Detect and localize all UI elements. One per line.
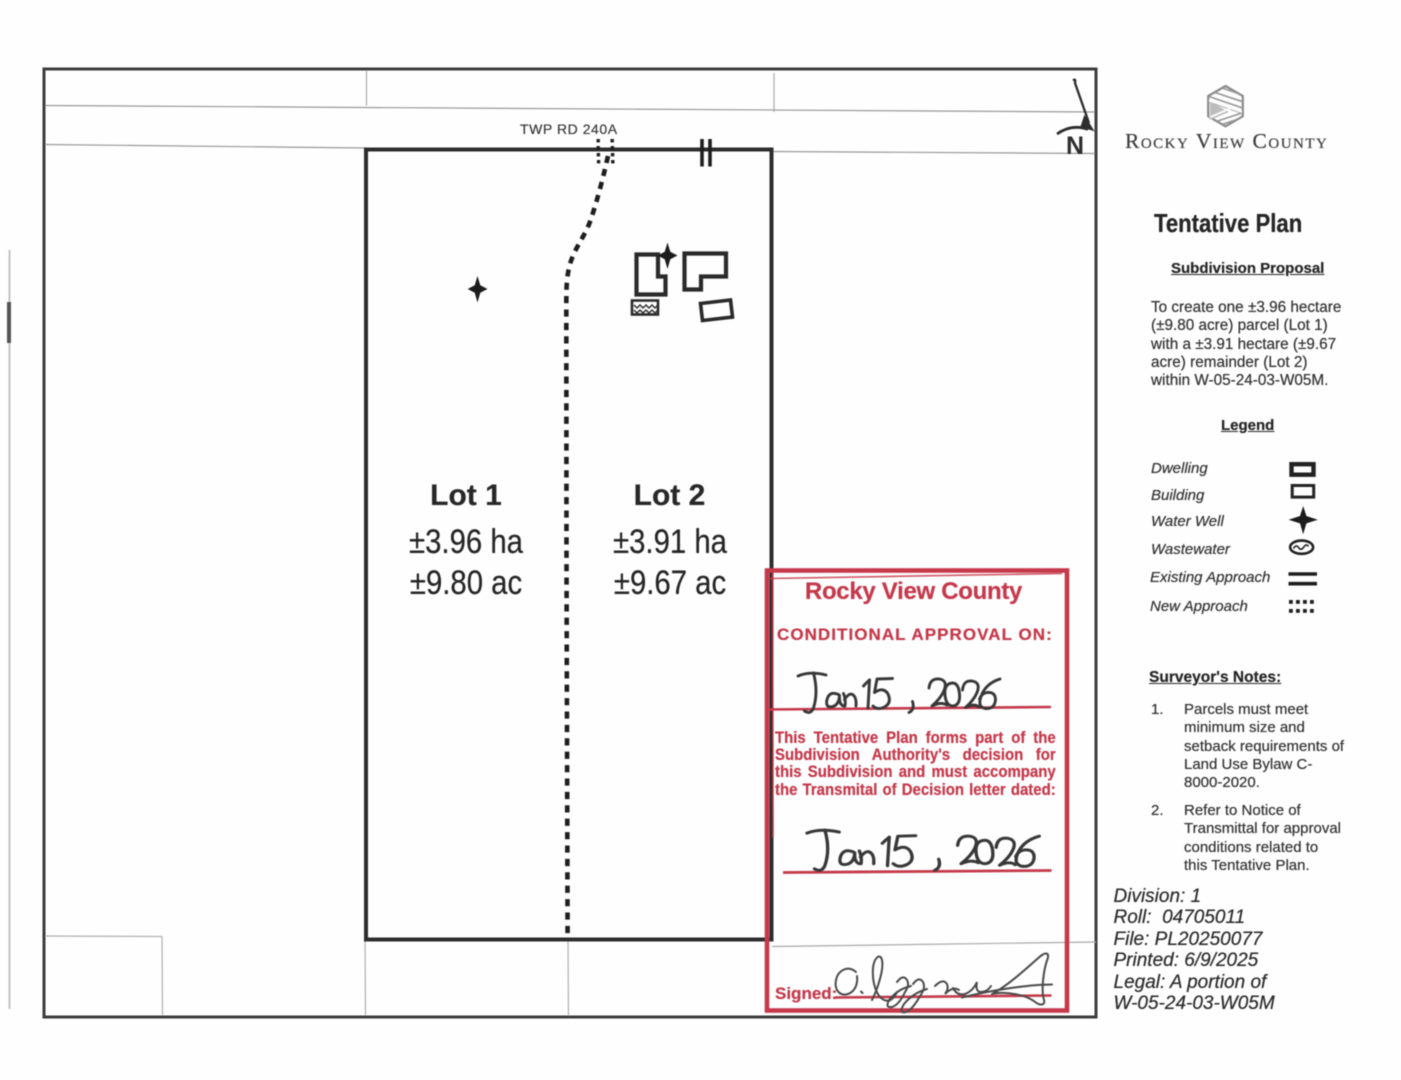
svg-text:N: N [1066,132,1084,160]
